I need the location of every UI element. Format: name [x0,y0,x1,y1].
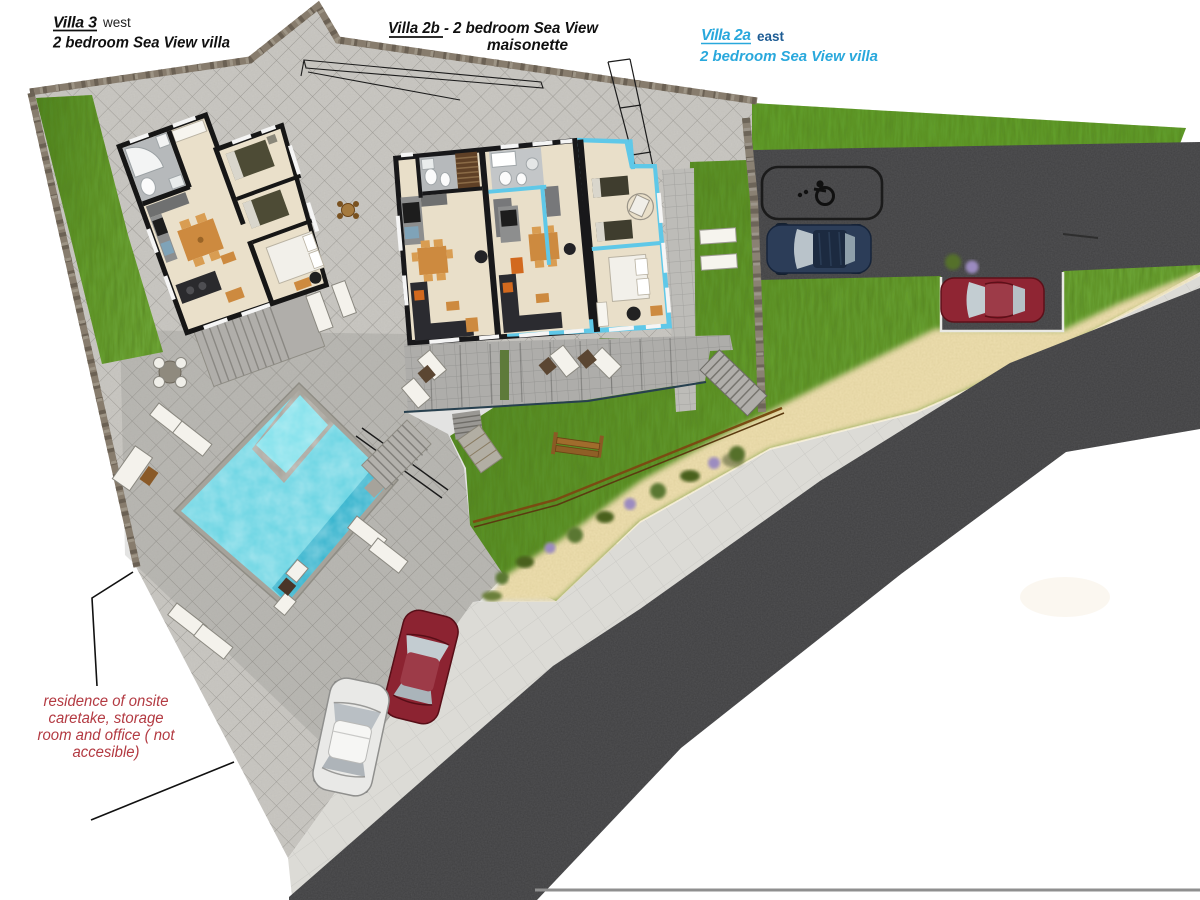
svg-text:Villa 2b - 2 bedroom Sea View: Villa 2b - 2 bedroom Sea View [388,20,599,37]
svg-text:residence of onsite: residence of onsite [44,693,169,710]
svg-text:room and office ( not: room and office ( not [38,727,176,744]
svg-text:Villa 3: Villa 3 [53,15,97,32]
svg-text:maisonette: maisonette [487,37,568,54]
svg-text:2 bedroom Sea View villa: 2 bedroom Sea View villa [52,35,230,52]
svg-text:west: west [102,15,131,30]
svg-text:accesible): accesible) [73,744,140,761]
svg-text:2 bedroom Sea View villa: 2 bedroom Sea View villa [699,48,878,65]
svg-text:Villa 2a: Villa 2a [701,27,751,44]
svg-text:east: east [757,29,785,44]
svg-text:caretake, storage: caretake, storage [49,710,164,727]
